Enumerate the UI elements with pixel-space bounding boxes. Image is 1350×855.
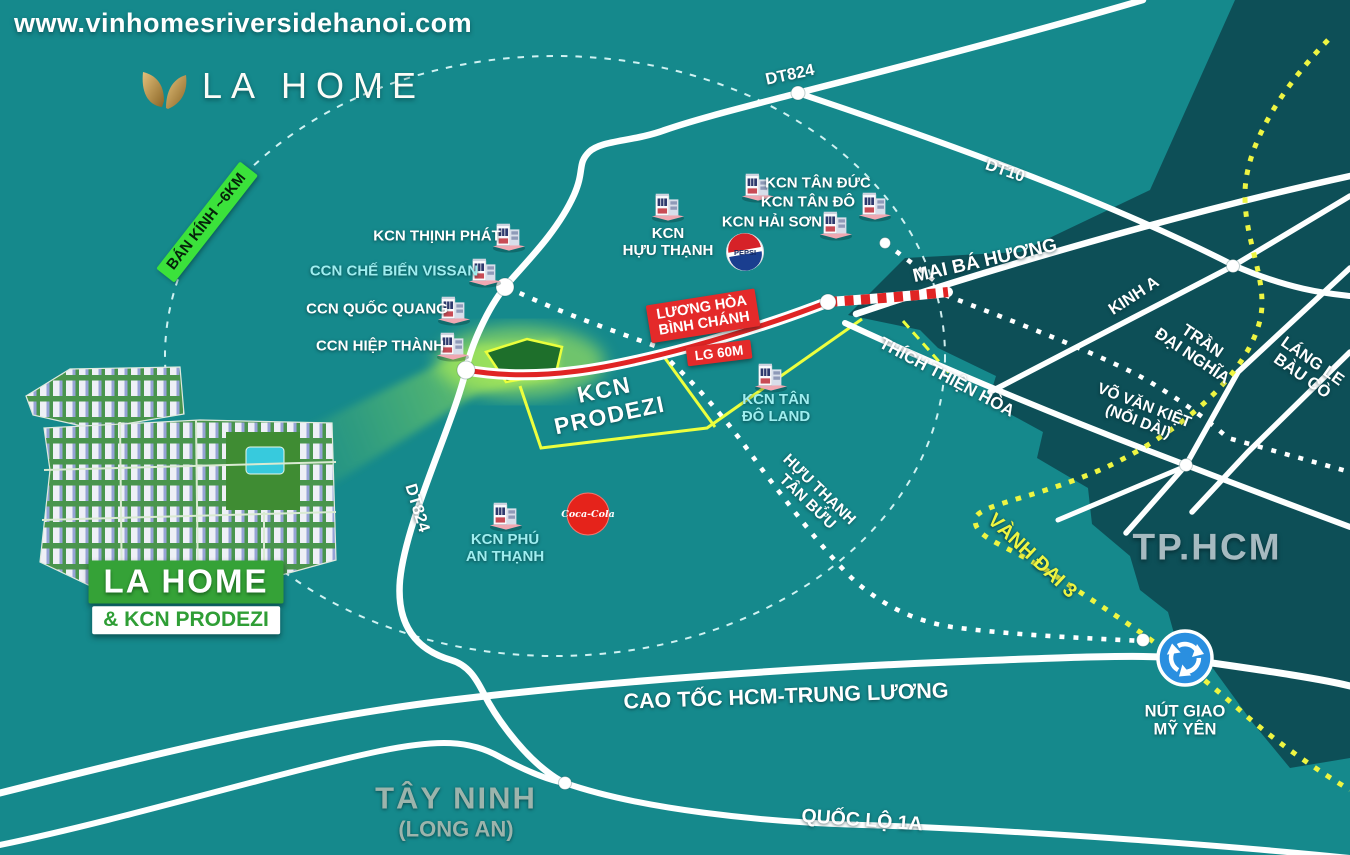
park-label-phu-an-thanh: KCN PHÚ AN THẠNH [466, 532, 544, 566]
factory-icon-hai-son [820, 212, 852, 241]
brand-logo-text: LA HOME [202, 65, 425, 107]
park-label-tan-do: KCN TÂN ĐÔ [761, 195, 855, 212]
park-label-hiep-thanh: CCN HIỆP THÀNH [316, 339, 444, 356]
park-label-hai-son: KCN HẢI SƠN [722, 215, 822, 232]
region-label-tphcm: TP.HCM [1132, 526, 1281, 567]
park-label-quoc-quang: CCN QUỐC QUANG [306, 302, 448, 319]
watermark-url: www.vinhomesriversidehanoi.com [14, 8, 472, 39]
factory-icon-phu-an-thanh [490, 503, 522, 532]
svg-text:Coca-Cola: Coca-Cola [561, 509, 614, 520]
factory-icon-huu-thanh [652, 194, 684, 223]
region-label-long-an: (LONG AN) [398, 818, 513, 843]
svg-text:PEPSI: PEPSI [734, 248, 756, 257]
park-label-tan-do-land: KCN TÂN ĐÔ LAND [742, 392, 810, 426]
factory-icon-tan-do-land [755, 364, 787, 393]
brand-logo: LA HOME [138, 62, 425, 110]
pepsi-logo: PEPSI [726, 231, 765, 274]
location-map: PEPSI Coca-Cola www.vinhomesriversidehan… [0, 0, 1350, 855]
leaf-icon [138, 62, 190, 110]
coca-cola-logo: Coca-Cola [561, 493, 614, 535]
park-label-vissan: CCN CHẾ BIẾN VISSAN [310, 264, 478, 281]
interchange-label: NÚT GIAO MỸ YÊN [1145, 703, 1226, 740]
park-label-huu-thanh: KCN HỰU THẠNH [623, 226, 714, 260]
site-subtitle: & KCN PRODEZI [92, 606, 280, 634]
roundabout-icon [1158, 631, 1212, 685]
park-label-tan-duc: KCN TÂN ĐỨC [765, 176, 871, 193]
site-title: LA HOME [89, 561, 284, 604]
road-quoc-lo-1a [0, 743, 1350, 855]
park-label-thinh-phat: KCN THỊNH PHÁT [373, 229, 501, 246]
region-label-tay-ninh: TÂY NINH [375, 782, 537, 817]
